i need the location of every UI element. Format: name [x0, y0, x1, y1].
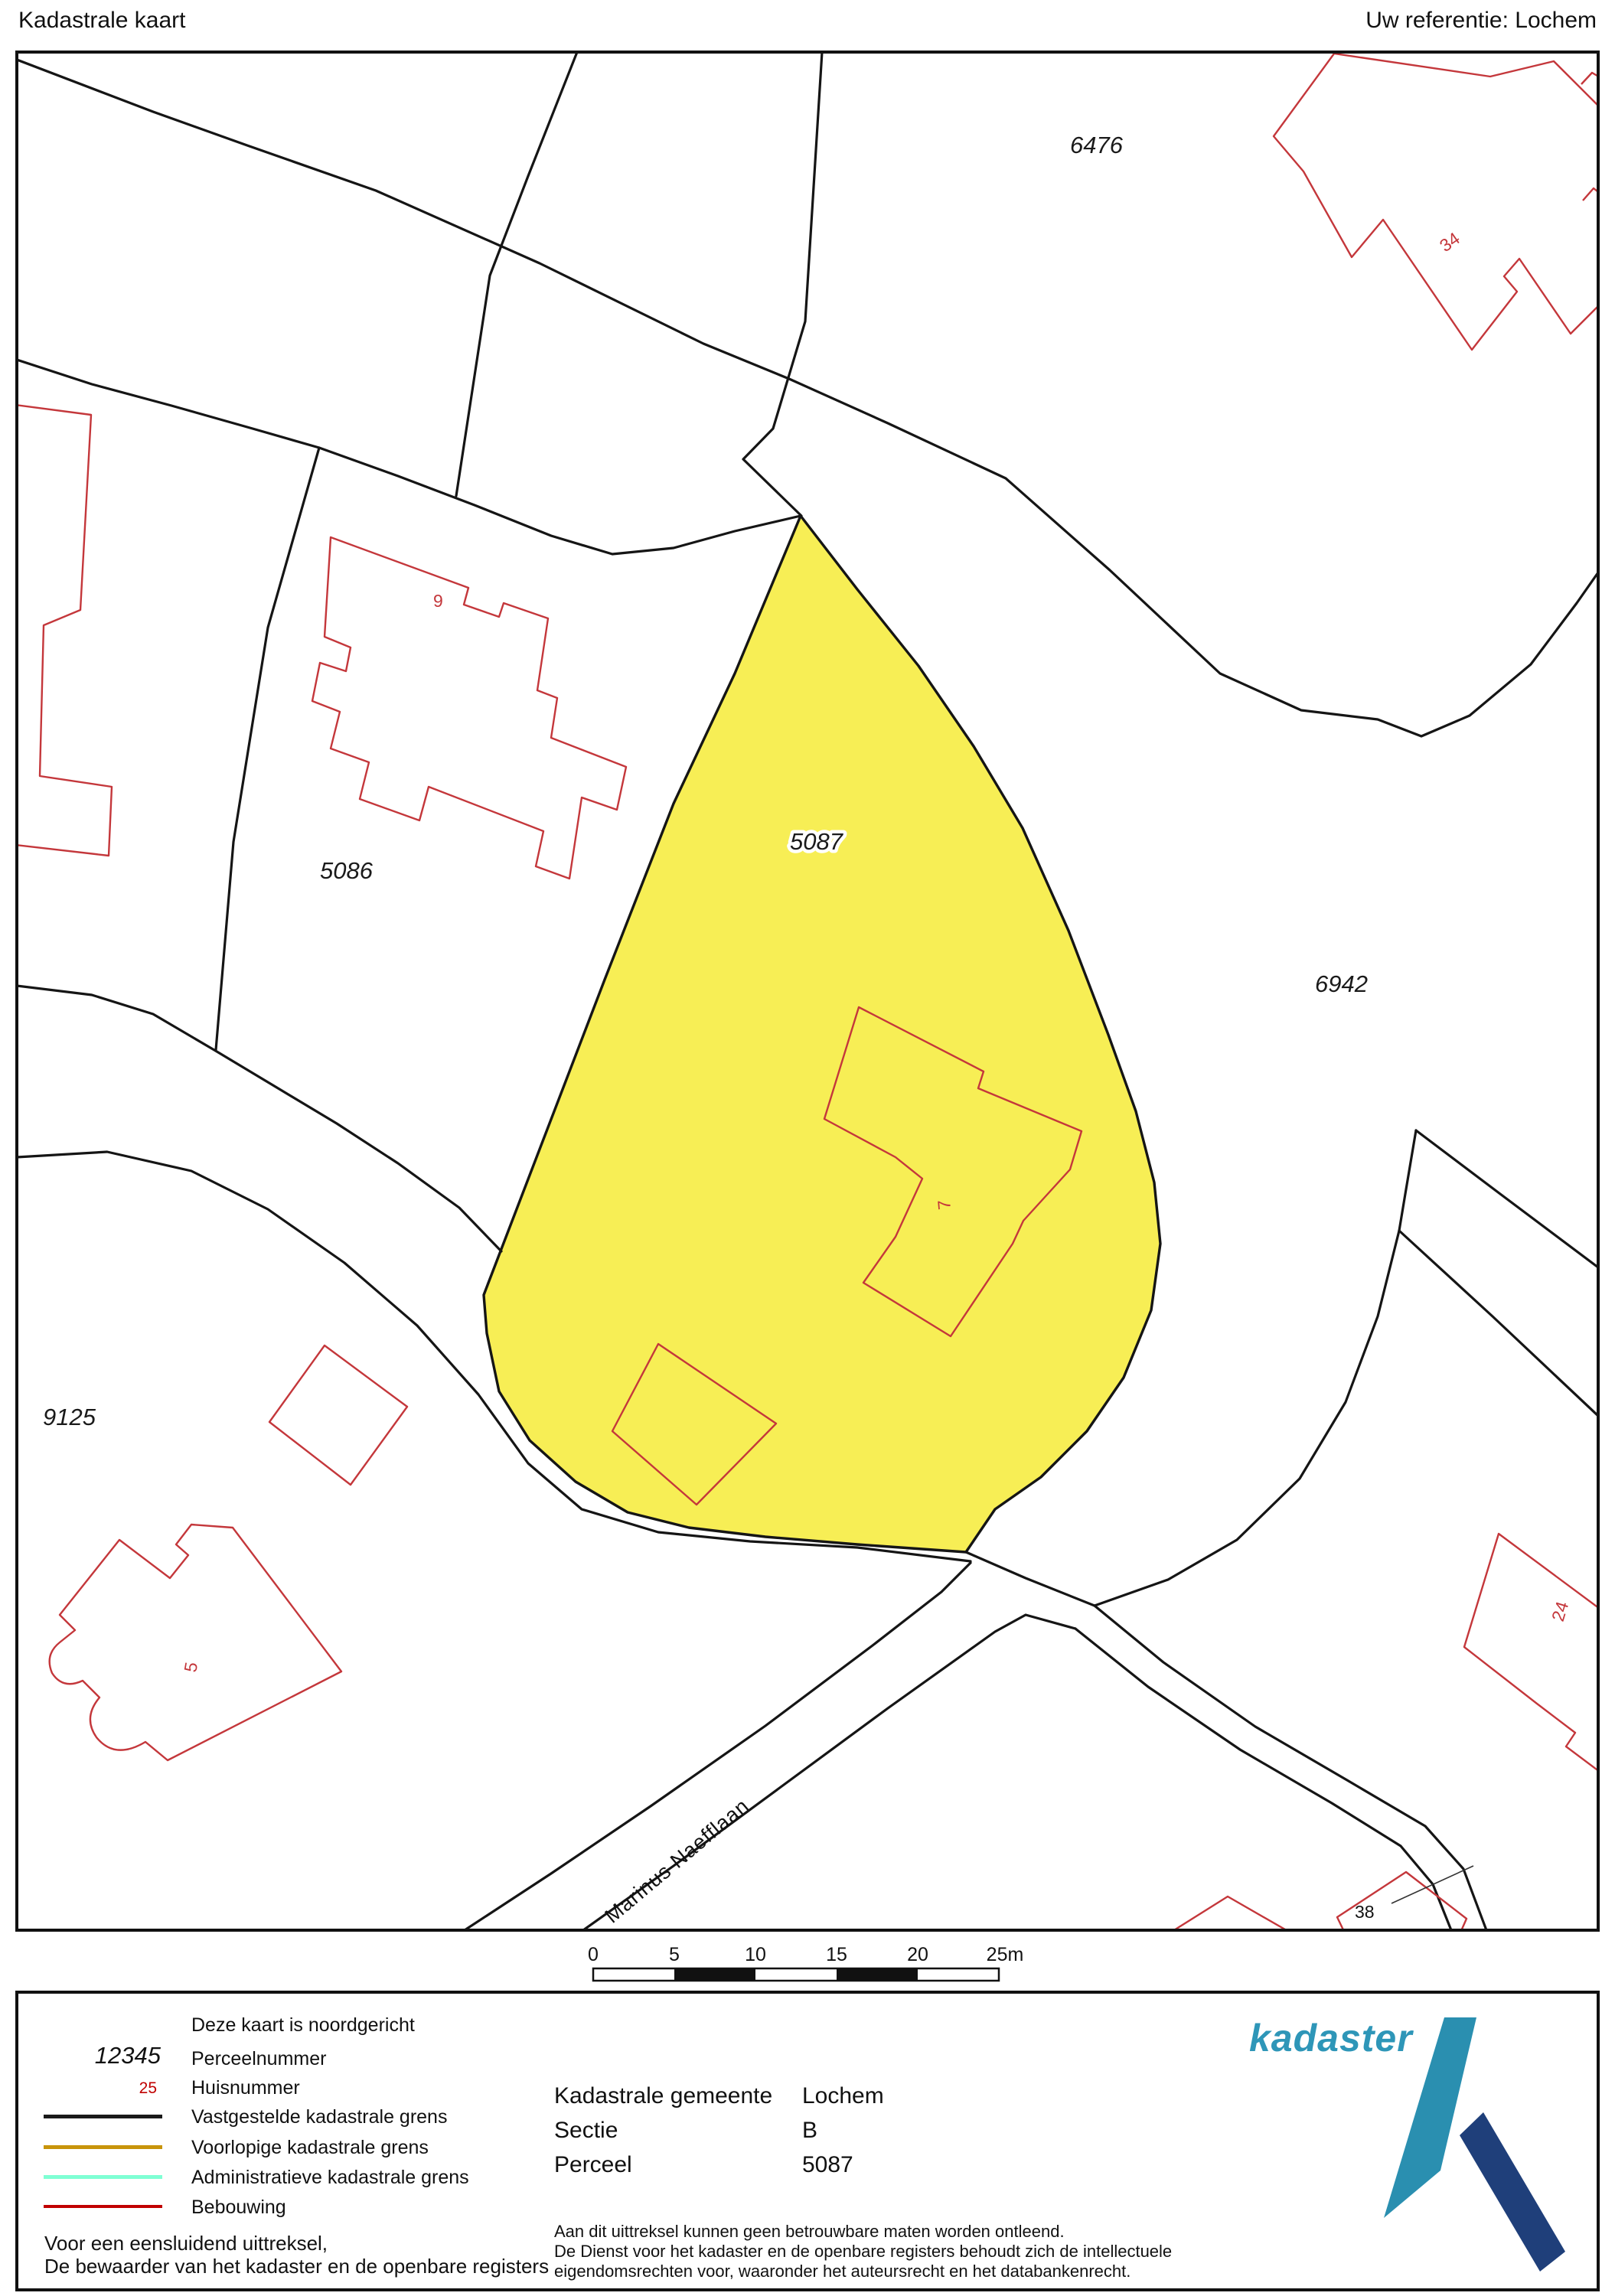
boundary-junction-link: [966, 1552, 1095, 1606]
building-5-outline: [50, 1525, 341, 1760]
legend-line-buildings-label: Bebouwing: [191, 2197, 286, 2219]
scale-tick-0: 0: [588, 1944, 599, 1965]
detail-value-gemeente: Lochem: [802, 2083, 884, 2109]
parcel-label-9125: 9125: [43, 1404, 96, 1430]
attest-line-1: Voor een eensluidend uittreksel,: [44, 2232, 328, 2255]
legend-house-label: Huisnummer: [191, 2077, 300, 2099]
legend-parcel-label: Perceelnummer: [191, 2048, 326, 2070]
boundary-5086-9125: [216, 448, 319, 1050]
scale-bar-segment-dark-2: [837, 1968, 918, 1981]
legend-house-sample: 25: [38, 2079, 157, 2098]
parcel-5087-shape: [484, 516, 1160, 1552]
house-number-7: 7: [934, 1199, 954, 1211]
cadastral-map-page: Kadastrale kaart Uw referentie: Lochem: [0, 0, 1615, 2296]
disclaimer-line-1: Aan dit uittreksel kunnen geen betrouwba…: [554, 2222, 1065, 2242]
map-content: 6476 5086 5087 6942 9125 9 34 7 5 24 38 …: [15, 52, 1601, 1938]
disclaimer-line-2: De Dienst voor het kadaster en de openba…: [554, 2242, 1172, 2262]
house-number-9: 9: [433, 591, 443, 611]
boundary-se-road-lower: [1075, 1629, 1451, 1930]
logo-beam-shape: [1460, 2112, 1565, 2272]
parcel-label-5087: 5087: [790, 828, 844, 855]
scale-tick-15: 15: [826, 1944, 847, 1965]
legend-line-administrative-label: Administratieve kadastrale grens: [191, 2167, 469, 2189]
legend-line-administrative-swatch: [44, 2175, 162, 2179]
detail-value-perceel: 5087: [802, 2152, 853, 2178]
scale-tick-5: 5: [669, 1944, 680, 1965]
disclaimer-line-3: eigendomsrechten voor, waaronder het aut…: [554, 2262, 1130, 2281]
parcel-label-6942: 6942: [1315, 970, 1368, 997]
building-shed-9125-outline: [269, 1345, 407, 1485]
parcel-label-5086: 5086: [320, 857, 374, 884]
street-name-label: Marinus Naefflaan: [601, 1794, 754, 1927]
boundary-east-fork-upper: [1416, 1130, 1598, 1267]
detail-value-sectie: B: [802, 2118, 817, 2144]
legend-line-provisional-swatch: [44, 2145, 162, 2149]
building-34-outline: [1274, 54, 1600, 350]
parcel-label-6476: 6476: [1070, 132, 1124, 158]
legend-line-buildings-swatch: [44, 2205, 162, 2208]
legend-line-fixed-label: Vastgestelde kadastrale grens: [191, 2106, 447, 2128]
kadaster-logo-text: kadaster: [1249, 2016, 1413, 2060]
legend-parcel-sample: 12345: [38, 2042, 161, 2069]
building-9-outline: [312, 537, 626, 879]
scale-tick-20: 20: [907, 1944, 928, 1965]
boundary-street-upper: [465, 1563, 971, 1930]
legend-north-note: Deze kaart is noordgericht: [191, 2014, 415, 2037]
map-canvas: 6476 5086 5087 6942 9125 9 34 7 5 24 38 …: [0, 0, 1615, 2296]
legend-line-provisional-label: Voorlopige kadastrale grens: [191, 2137, 429, 2159]
house-number-24: 24: [1548, 1599, 1572, 1623]
detail-label-sectie: Sectie: [554, 2118, 618, 2144]
scale-bar-track: [593, 1968, 999, 1981]
house-number-34: 34: [1436, 228, 1463, 256]
boundary-sw-road-upper: [17, 986, 501, 1251]
legend-line-fixed-swatch: [44, 2115, 162, 2118]
scale-bar-segment-dark-1: [674, 1968, 755, 1981]
boundary-se-road-upper: [1095, 1606, 1486, 1930]
boundary-east-fork-lower: [1399, 1231, 1598, 1416]
attest-line-2: De bewaarder van het kadaster en de open…: [44, 2255, 549, 2278]
boundary-top-road-lower: [17, 360, 801, 554]
scale-tick-10: 10: [745, 1944, 766, 1965]
building-24-outline: [1464, 1534, 1600, 1772]
house-number-38: 38: [1355, 1902, 1375, 1922]
scale-bar: 0 5 10 15 20 25m: [588, 1944, 1023, 1981]
boundary-tip-line: [743, 52, 822, 516]
scale-tick-25m: 25m: [987, 1944, 1024, 1965]
house-number-5: 5: [180, 1661, 201, 1674]
detail-label-perceel: Perceel: [554, 2152, 632, 2178]
house-38-leader-line: [1392, 1866, 1473, 1903]
building-left-edge-outline: [15, 405, 112, 856]
detail-label-gemeente: Kadastrale gemeente: [554, 2083, 772, 2109]
